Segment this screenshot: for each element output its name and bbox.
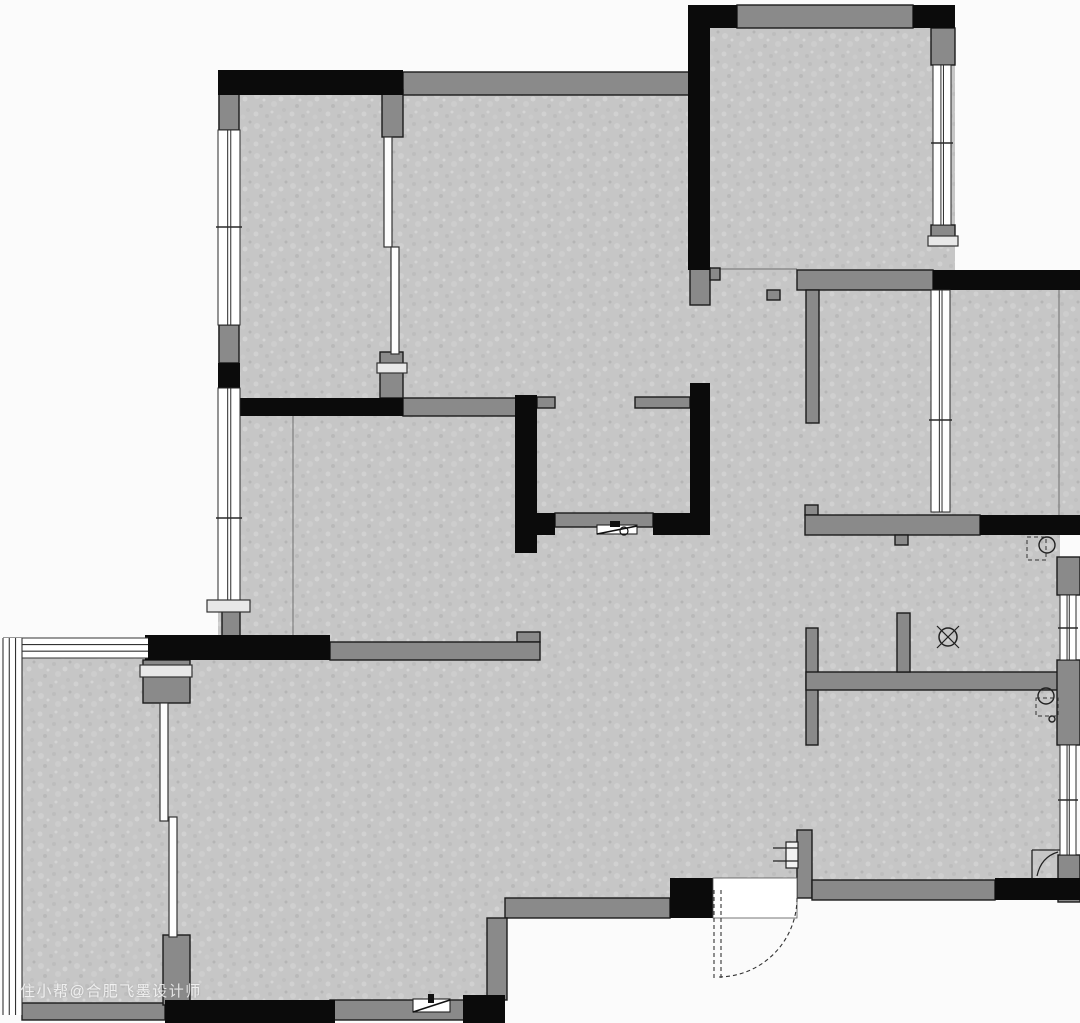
window-frame [218,388,240,600]
partition-wall [805,515,980,535]
partition-wall [330,642,540,660]
partition-wall [806,290,819,423]
floor-slab [218,72,708,416]
partition-wall [690,268,710,305]
window [929,290,952,512]
sliding-door-panel [391,247,399,354]
structural-wall [670,878,713,918]
partition-wall [517,632,540,642]
structural-wall [933,270,1080,290]
partition-wall [403,72,690,95]
partition-wall [797,830,812,898]
structural-wall [165,1000,335,1023]
window [216,130,242,325]
structural-wall [218,70,403,95]
partition-wall [505,898,670,918]
partition-wall [635,397,690,408]
partition-wall [1057,660,1080,745]
structural-wall [688,5,710,270]
sill-handle-bar [207,600,250,612]
partition-wall [487,918,507,1000]
partition-wall [767,290,780,300]
structural-wall [515,513,555,535]
partition-wall [403,398,517,416]
window-frame [933,65,951,225]
partition-wall [805,505,818,515]
entry-door [713,878,797,978]
partition-wall [537,397,555,408]
floor-slab [690,5,955,290]
floor-slab [165,660,505,1020]
window [216,388,242,600]
structural-wall [980,515,1080,535]
floor-plan-canvas: 住小帮@合肥飞墨设计师 [0,0,1080,1023]
vent-tick [610,521,620,527]
partition-wall [380,352,403,398]
balcony-glazing-bg [3,638,148,658]
sill-handle-bar [140,665,192,677]
partition-wall [806,672,1060,690]
structural-wall [913,5,955,28]
partition-wall [797,270,933,290]
partition-wall [219,325,239,363]
structural-wall [463,995,505,1023]
window [931,65,953,225]
partition-wall [22,1003,165,1020]
balcony-glazing [3,638,22,1015]
partition-wall [710,268,720,280]
structural-wall [145,635,330,660]
sill-handle-bar [928,236,958,246]
window [1058,745,1078,855]
watermark-text: 住小帮@合肥飞墨设计师 [20,980,202,1001]
partition-wall [812,880,995,900]
structural-wall [690,383,710,517]
window [1058,595,1078,660]
structural-wall [220,398,403,416]
balcony-glazing [3,638,148,658]
partition-wall [1057,557,1080,595]
partition-wall [897,613,910,672]
sliding-door-panel [160,703,168,821]
partition-wall [737,5,913,28]
structural-wall [995,878,1080,900]
floor-plan-drawing [0,0,1080,1023]
window-frame [931,290,950,512]
entry-door-opening [713,878,797,918]
sliding-door-panel [384,137,392,247]
door-stop-icon [786,842,798,868]
vent-tick [428,994,434,1003]
partition-wall [931,28,955,65]
partition-wall [895,535,908,545]
structural-wall [653,513,710,535]
structural-wall [690,5,737,28]
structural-wall [218,363,240,390]
partition-wall [382,90,403,137]
balcony-glazing-bg [3,638,22,1015]
sill-handle-bar [377,363,407,373]
sliding-door-panel [169,817,177,937]
